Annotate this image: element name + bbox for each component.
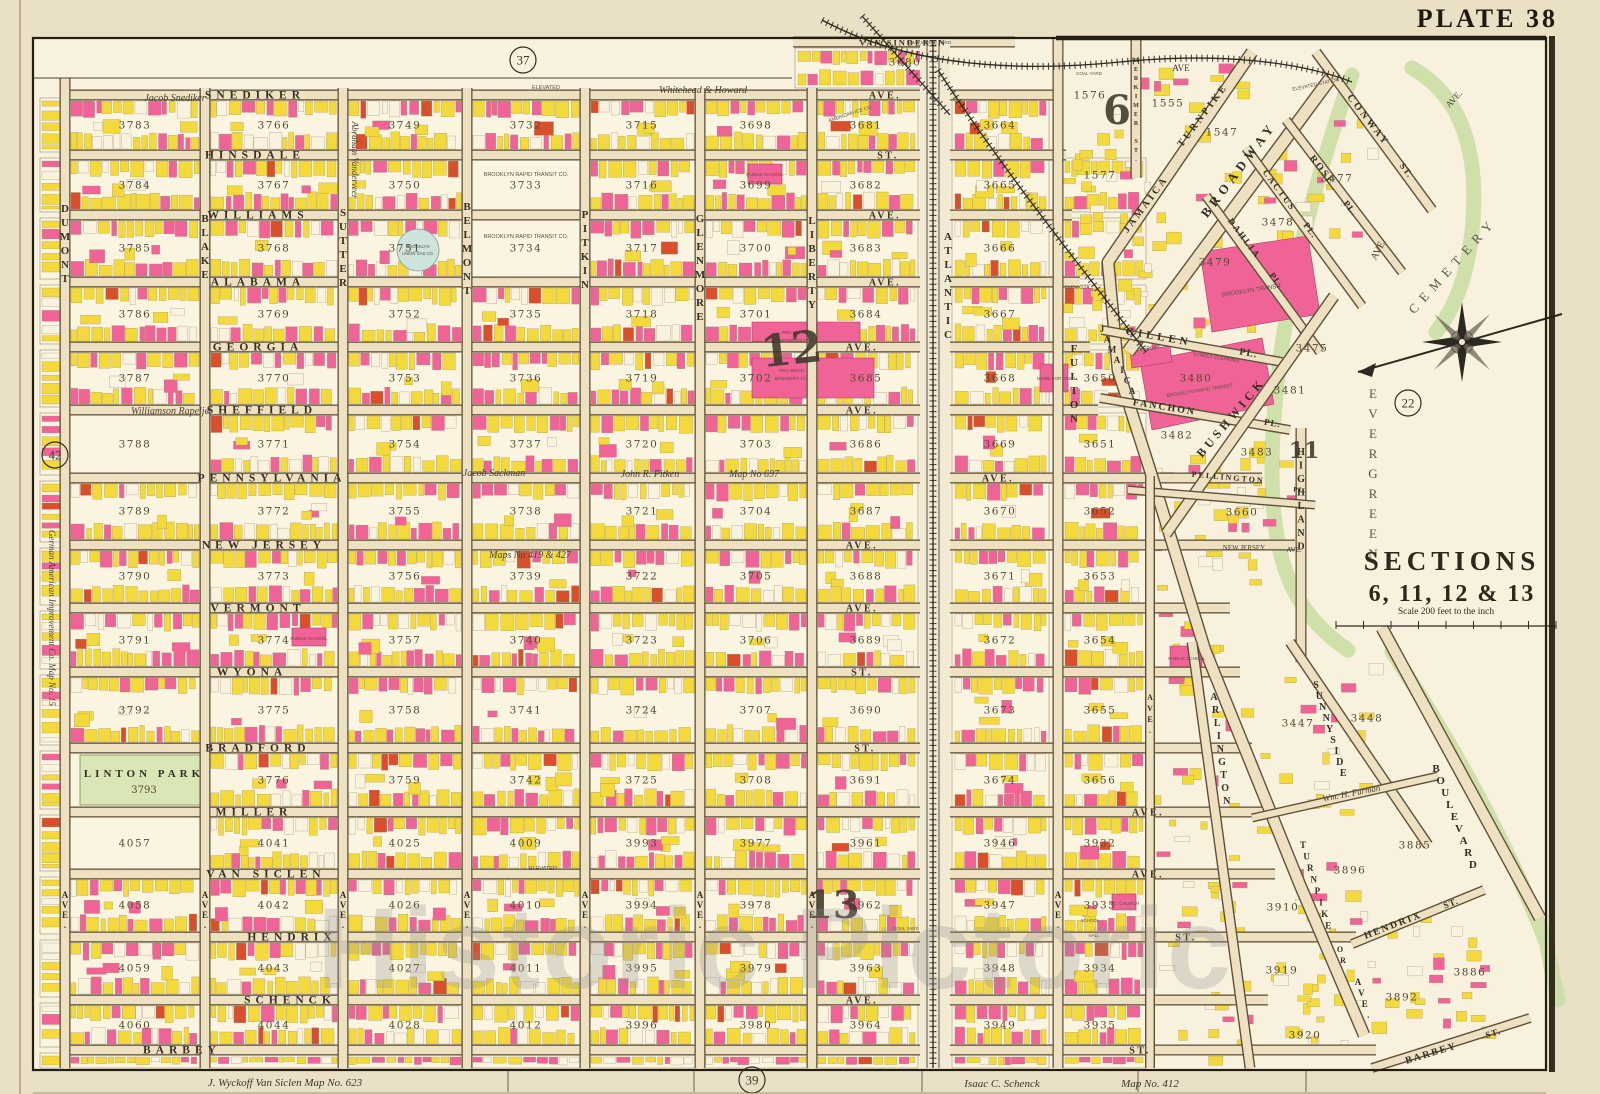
building — [498, 288, 504, 299]
building — [833, 161, 840, 175]
building — [731, 526, 742, 539]
building — [134, 654, 146, 666]
building — [1020, 587, 1032, 603]
street-name: E — [1362, 999, 1368, 1009]
building — [1077, 416, 1087, 429]
building — [636, 551, 646, 564]
building — [649, 484, 660, 499]
building — [866, 589, 873, 602]
building — [42, 514, 61, 519]
building — [159, 590, 170, 602]
building — [743, 1033, 751, 1044]
building — [382, 101, 387, 114]
street-name: R — [1307, 863, 1314, 873]
building — [629, 754, 635, 766]
building — [434, 678, 447, 690]
building — [229, 101, 241, 115]
building — [136, 221, 143, 236]
building — [563, 851, 571, 868]
building — [267, 161, 275, 177]
building — [295, 484, 307, 495]
street-name: SHEFFIELD — [207, 405, 317, 417]
building — [170, 880, 180, 894]
building — [240, 259, 250, 276]
building — [1141, 291, 1148, 296]
annotation: BLUE STONE YARD — [907, 40, 952, 46]
building — [1196, 328, 1202, 337]
plate-ref-number: 37 — [517, 53, 531, 68]
building — [1212, 559, 1222, 571]
annotation: NEW JERSEY — [1223, 544, 1265, 552]
building — [720, 288, 733, 299]
street-name: K — [1321, 909, 1328, 919]
building — [279, 678, 291, 695]
building — [218, 1006, 226, 1022]
building — [648, 754, 662, 771]
building — [150, 919, 163, 931]
building — [624, 551, 635, 568]
building — [1263, 519, 1276, 526]
building — [754, 790, 765, 806]
building — [1438, 998, 1450, 1003]
building — [739, 263, 752, 276]
building — [272, 416, 284, 431]
building — [453, 523, 459, 539]
building — [361, 221, 372, 232]
building — [165, 1006, 173, 1023]
building — [229, 943, 235, 960]
building — [637, 730, 644, 742]
building — [242, 101, 255, 112]
building — [1068, 640, 1078, 647]
building — [172, 643, 190, 652]
building — [392, 652, 399, 666]
building — [617, 793, 624, 806]
building — [1032, 528, 1044, 539]
building — [781, 678, 793, 692]
building — [764, 614, 775, 627]
building — [679, 416, 693, 433]
building — [77, 353, 89, 368]
building — [716, 678, 722, 691]
building — [877, 1032, 889, 1044]
building — [539, 678, 547, 691]
street-name: M — [1108, 345, 1117, 355]
building — [532, 101, 541, 115]
building — [218, 943, 227, 958]
building — [1241, 709, 1254, 718]
building — [609, 161, 622, 177]
building — [824, 101, 836, 116]
street-name: L — [463, 229, 470, 241]
building — [1009, 288, 1021, 303]
building — [601, 727, 611, 742]
building — [305, 135, 310, 149]
building — [767, 790, 773, 806]
building — [646, 1057, 656, 1062]
building — [988, 198, 997, 209]
building — [982, 589, 991, 602]
building — [42, 890, 61, 896]
building — [391, 288, 398, 304]
block-number: 3700 — [740, 243, 773, 255]
building — [400, 392, 410, 404]
building — [301, 678, 311, 692]
building — [860, 330, 867, 341]
building — [71, 484, 79, 497]
building — [232, 678, 242, 694]
building — [235, 728, 245, 742]
building — [744, 524, 756, 539]
building — [108, 918, 118, 931]
building — [988, 353, 993, 370]
park-linton: LINTON PARK3793 — [80, 755, 208, 805]
building — [331, 789, 337, 806]
street-name: R — [1464, 847, 1473, 859]
building — [473, 416, 486, 430]
building — [895, 221, 905, 233]
building — [775, 585, 783, 602]
building — [133, 614, 146, 626]
building — [162, 966, 173, 980]
building — [514, 416, 524, 433]
building — [892, 818, 900, 833]
building — [550, 580, 567, 589]
block-number: 3703 — [740, 439, 773, 451]
building — [658, 649, 664, 666]
building — [756, 614, 761, 631]
building — [855, 484, 865, 495]
building — [1126, 792, 1137, 807]
building — [275, 353, 281, 368]
building — [1065, 650, 1077, 666]
street-name: O — [1436, 775, 1445, 787]
building — [677, 353, 685, 369]
building — [371, 353, 379, 367]
building — [510, 818, 524, 833]
building — [889, 101, 895, 114]
building — [842, 523, 850, 539]
building — [42, 484, 61, 492]
building — [872, 614, 880, 626]
building — [171, 589, 181, 603]
building — [557, 1030, 566, 1044]
building — [1042, 288, 1047, 299]
building — [753, 1033, 765, 1044]
building — [327, 353, 336, 368]
building — [71, 1033, 84, 1044]
building — [385, 387, 390, 404]
building — [1094, 212, 1103, 222]
building — [685, 221, 694, 233]
building — [605, 655, 613, 666]
building — [868, 221, 881, 238]
building — [591, 101, 598, 113]
building — [613, 731, 623, 742]
street-name: E — [808, 257, 815, 269]
building — [955, 134, 964, 149]
building — [785, 651, 793, 666]
building — [326, 590, 333, 602]
building — [597, 261, 607, 276]
scale-text: Scale 200 feet to the inch — [1398, 606, 1495, 617]
building — [1157, 585, 1167, 590]
building — [122, 388, 133, 404]
building — [599, 161, 606, 178]
street-name: N — [1319, 702, 1327, 713]
building — [651, 260, 664, 277]
building — [686, 134, 694, 149]
building — [42, 362, 61, 372]
building — [1037, 1057, 1046, 1065]
building — [854, 458, 862, 472]
building — [539, 795, 547, 806]
building — [358, 818, 364, 829]
building — [349, 324, 360, 341]
building — [388, 818, 393, 831]
building — [591, 754, 601, 767]
building — [42, 495, 61, 502]
building — [1065, 678, 1077, 692]
building — [890, 484, 901, 495]
building — [42, 818, 61, 827]
building — [296, 389, 307, 404]
building — [148, 614, 153, 631]
building — [678, 221, 683, 233]
building — [385, 484, 394, 495]
building — [994, 614, 1002, 627]
building — [473, 353, 484, 366]
building — [211, 1057, 217, 1062]
building — [1065, 754, 1072, 767]
building — [117, 614, 130, 628]
building — [122, 1006, 135, 1019]
street-name: C — [944, 329, 952, 341]
building — [414, 588, 425, 602]
building — [1323, 753, 1330, 765]
building — [1096, 551, 1109, 566]
building — [520, 484, 532, 496]
building — [833, 71, 846, 85]
building — [325, 853, 335, 868]
building — [1122, 614, 1135, 625]
building — [1129, 653, 1135, 667]
building — [635, 856, 647, 868]
building — [211, 551, 223, 563]
building — [85, 649, 91, 666]
building — [613, 221, 620, 234]
building — [591, 1057, 602, 1063]
building — [219, 818, 224, 835]
building — [793, 263, 800, 276]
building — [655, 101, 666, 117]
building — [568, 459, 578, 472]
building — [261, 880, 268, 894]
building — [818, 614, 824, 627]
building — [298, 1029, 303, 1044]
building — [315, 728, 322, 743]
building — [42, 899, 61, 905]
building — [238, 754, 243, 770]
building — [478, 436, 491, 446]
building — [243, 614, 252, 628]
building — [955, 1027, 965, 1044]
building — [115, 1057, 125, 1063]
block-number: 3732 — [510, 120, 543, 132]
building — [211, 678, 219, 692]
building — [658, 818, 667, 832]
building — [292, 262, 302, 277]
building — [140, 725, 145, 742]
building — [233, 195, 244, 209]
street-name: B — [201, 213, 209, 225]
building — [438, 326, 450, 341]
building — [1157, 852, 1171, 857]
street-name: N — [581, 279, 589, 291]
building — [71, 728, 84, 742]
building — [986, 416, 996, 428]
building — [683, 196, 694, 209]
building — [647, 525, 659, 539]
building — [308, 1006, 315, 1019]
building — [966, 754, 976, 766]
building — [283, 353, 295, 364]
building — [231, 263, 237, 277]
building — [542, 459, 553, 472]
building — [1085, 818, 1096, 834]
building — [555, 484, 566, 495]
building — [375, 198, 382, 210]
building — [42, 1056, 61, 1065]
building — [437, 790, 449, 806]
building — [989, 854, 1001, 868]
building — [220, 1032, 232, 1044]
building — [42, 943, 61, 952]
building — [104, 328, 110, 341]
building — [688, 391, 694, 404]
building — [982, 161, 992, 178]
building — [314, 353, 325, 366]
building — [243, 161, 255, 174]
building — [1118, 526, 1124, 539]
building — [404, 484, 417, 495]
building — [438, 221, 447, 236]
building — [1317, 1017, 1325, 1023]
building — [99, 729, 111, 743]
building — [382, 587, 395, 602]
building — [297, 353, 304, 369]
plate-ref-number: 22 — [1402, 396, 1415, 411]
block-number: 3689 — [850, 635, 883, 647]
building — [1012, 525, 1021, 539]
street-name: M — [60, 231, 71, 243]
building — [164, 221, 175, 234]
building — [372, 754, 380, 768]
building — [1034, 614, 1041, 631]
building — [1029, 456, 1040, 472]
building — [1471, 1015, 1485, 1021]
building — [659, 678, 666, 693]
building — [848, 726, 858, 742]
building — [175, 221, 187, 237]
building — [304, 221, 310, 237]
building — [1030, 221, 1043, 233]
building — [518, 393, 524, 404]
building — [96, 288, 103, 303]
building — [800, 484, 806, 498]
building — [84, 900, 99, 913]
building — [754, 484, 765, 499]
building — [249, 484, 256, 496]
block-number: 3477 — [1321, 173, 1354, 185]
building — [679, 727, 691, 742]
building — [289, 133, 294, 150]
building — [706, 526, 711, 539]
building — [672, 325, 680, 341]
annotation: ELEVATED — [532, 85, 560, 91]
building — [1407, 1010, 1423, 1019]
building — [191, 138, 198, 150]
building — [886, 161, 893, 174]
building — [391, 457, 403, 472]
building — [262, 196, 269, 209]
building — [591, 328, 601, 341]
building — [224, 588, 234, 602]
building — [1298, 996, 1312, 1001]
building — [242, 818, 247, 835]
building — [651, 133, 658, 149]
building — [419, 198, 429, 209]
building — [321, 1057, 331, 1064]
building — [42, 437, 61, 446]
building — [473, 288, 486, 302]
building — [71, 221, 81, 235]
building — [1039, 327, 1044, 341]
building — [1209, 1029, 1219, 1038]
building — [796, 221, 802, 236]
building — [535, 587, 544, 602]
building — [164, 380, 177, 393]
block-number: 3758 — [389, 705, 422, 717]
building — [421, 857, 432, 868]
building — [1033, 551, 1045, 563]
building — [396, 591, 402, 602]
building — [1107, 461, 1120, 472]
building — [658, 161, 669, 176]
building — [79, 389, 90, 404]
building — [906, 353, 911, 368]
building — [573, 133, 579, 149]
building — [424, 390, 433, 404]
building — [1079, 678, 1091, 694]
building — [1070, 317, 1084, 327]
building — [180, 122, 197, 133]
building — [494, 856, 499, 868]
building — [818, 193, 828, 209]
building — [966, 253, 977, 266]
building — [42, 206, 61, 209]
building — [818, 852, 823, 868]
building — [441, 730, 454, 742]
building — [131, 161, 144, 177]
building — [676, 818, 684, 833]
building — [621, 484, 627, 500]
block-number: 3775 — [258, 705, 291, 717]
building — [473, 792, 483, 806]
building — [1034, 727, 1039, 742]
street-name: U — [61, 217, 69, 229]
building — [1007, 221, 1019, 238]
